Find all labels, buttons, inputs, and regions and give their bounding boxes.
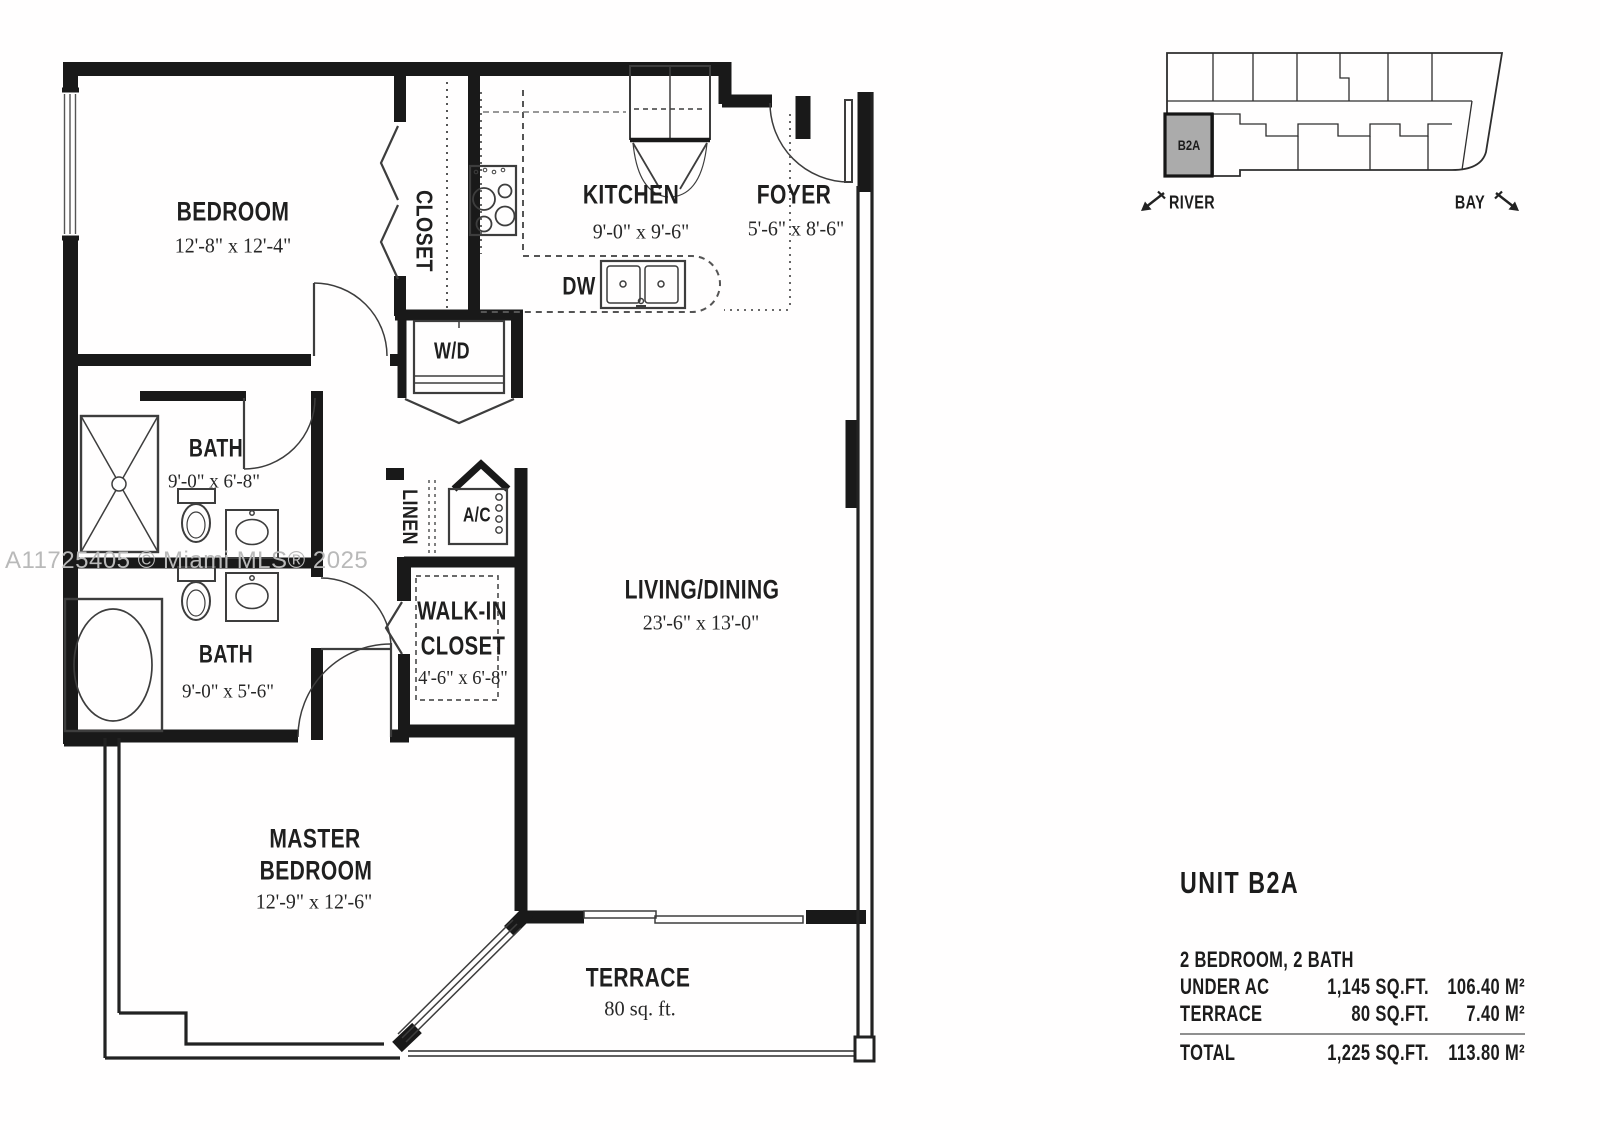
- key-plan-unit-label: B2A: [1178, 137, 1200, 153]
- row-sqft: 1,145 SQ.FT.: [1302, 973, 1430, 1000]
- room-label-terrace: TERRACE: [586, 963, 691, 994]
- row-m2: 113.80 M²: [1429, 1039, 1525, 1066]
- row-label: UNDER AC: [1180, 973, 1302, 1000]
- terrace-railing: [408, 1051, 858, 1056]
- room-label-living-dining: LIVING/DINING: [625, 575, 780, 606]
- room-dims-bath-2: 9'-0" x 5'-6": [182, 681, 274, 704]
- master-diagonal-slider-icon: [398, 920, 521, 1042]
- room-dims-master: 12'-9" x 12'-6": [256, 890, 373, 915]
- key-plan: [1165, 53, 1502, 176]
- room-label-master-2: BEDROOM: [260, 856, 373, 887]
- label-washer-dryer: W/D: [434, 338, 470, 365]
- room-dims-walkin: 4'-6" x 6'-8": [418, 668, 508, 690]
- room-dims-kitchen: 9'-0" x 9'-6": [593, 220, 690, 245]
- terrace-sliding-door-icon: [584, 911, 803, 923]
- bay-label: BAY: [1455, 193, 1485, 214]
- bay-arrow-icon: [1495, 192, 1519, 212]
- room-label-foyer: FOYER: [757, 180, 832, 211]
- room-label-walkin-2: CLOSET: [421, 631, 506, 662]
- row-label: TOTAL: [1180, 1039, 1302, 1066]
- kitchen-sink-icon: [601, 261, 685, 308]
- row-label: TERRACE: [1180, 1000, 1302, 1027]
- unit-info-row-under-ac: UNDER AC 1,145 SQ.FT. 106.40 M²: [1180, 973, 1525, 1000]
- row-m2: 7.40 M²: [1429, 1000, 1525, 1027]
- railing-end-cap: [855, 1037, 874, 1061]
- bedroom-window-icon: [62, 90, 79, 238]
- row-m2: 106.40 M²: [1429, 973, 1525, 1000]
- room-dims-living-dining: 23'-6" x 13'-0": [643, 611, 760, 636]
- unit-subtitle: 2 BEDROOM, 2 BATH: [1180, 946, 1525, 973]
- linen-shelves-icon: [429, 480, 435, 553]
- row-sqft: 1,225 SQ.FT.: [1302, 1039, 1430, 1066]
- unit-info-row-total: TOTAL 1,225 SQ.FT. 113.80 M²: [1180, 1039, 1525, 1066]
- room-dims-bath-1: 9'-0" x 6'-8": [168, 471, 260, 494]
- river-label: RIVER: [1169, 193, 1215, 214]
- unit-info-row-terrace: TERRACE 80 SQ.FT. 7.40 M²: [1180, 1000, 1525, 1027]
- row-sqft: 80 SQ.FT.: [1302, 1000, 1430, 1027]
- label-ac: A/C: [463, 505, 491, 528]
- room-label-bath-1: BATH: [189, 435, 243, 464]
- room-label-walkin-1: WALK-IN: [417, 596, 506, 627]
- room-label-linen: LINEN: [397, 489, 421, 545]
- bathtub-icon: [65, 599, 162, 731]
- room-dims-bedroom: 12'-8" x 12'-4": [175, 234, 292, 259]
- unit-info-panel: UNIT B2A 2 BEDROOM, 2 BATH UNDER AC 1,14…: [1180, 866, 1525, 1066]
- unit-title: UNIT B2A: [1180, 866, 1525, 900]
- river-arrow-icon: [1141, 192, 1165, 212]
- floorplan-page: BEDROOM 12'-8" x 12'-4" CLOSET KITCHEN 9…: [0, 0, 1600, 1130]
- total-divider: [1180, 1033, 1525, 1035]
- shower-icon: [81, 416, 158, 552]
- room-label-master-1: MASTER: [269, 824, 360, 855]
- room-dims-foyer: 5'-6" x 8'-6": [748, 217, 845, 242]
- room-label-kitchen: KITCHEN: [583, 180, 679, 211]
- room-label-bath-2: BATH: [199, 641, 253, 670]
- room-label-closet: CLOSET: [411, 190, 438, 272]
- toilet-icon: [178, 489, 215, 542]
- vanity-sink-icon: [226, 573, 278, 621]
- mls-watermark: A11725405 © Miami MLS® 2025: [5, 547, 368, 575]
- room-label-bedroom: BEDROOM: [177, 197, 290, 228]
- label-dishwasher: DW: [562, 273, 595, 302]
- room-area-terrace: 80 sq. ft.: [604, 997, 675, 1022]
- pantry-icon: [630, 66, 710, 197]
